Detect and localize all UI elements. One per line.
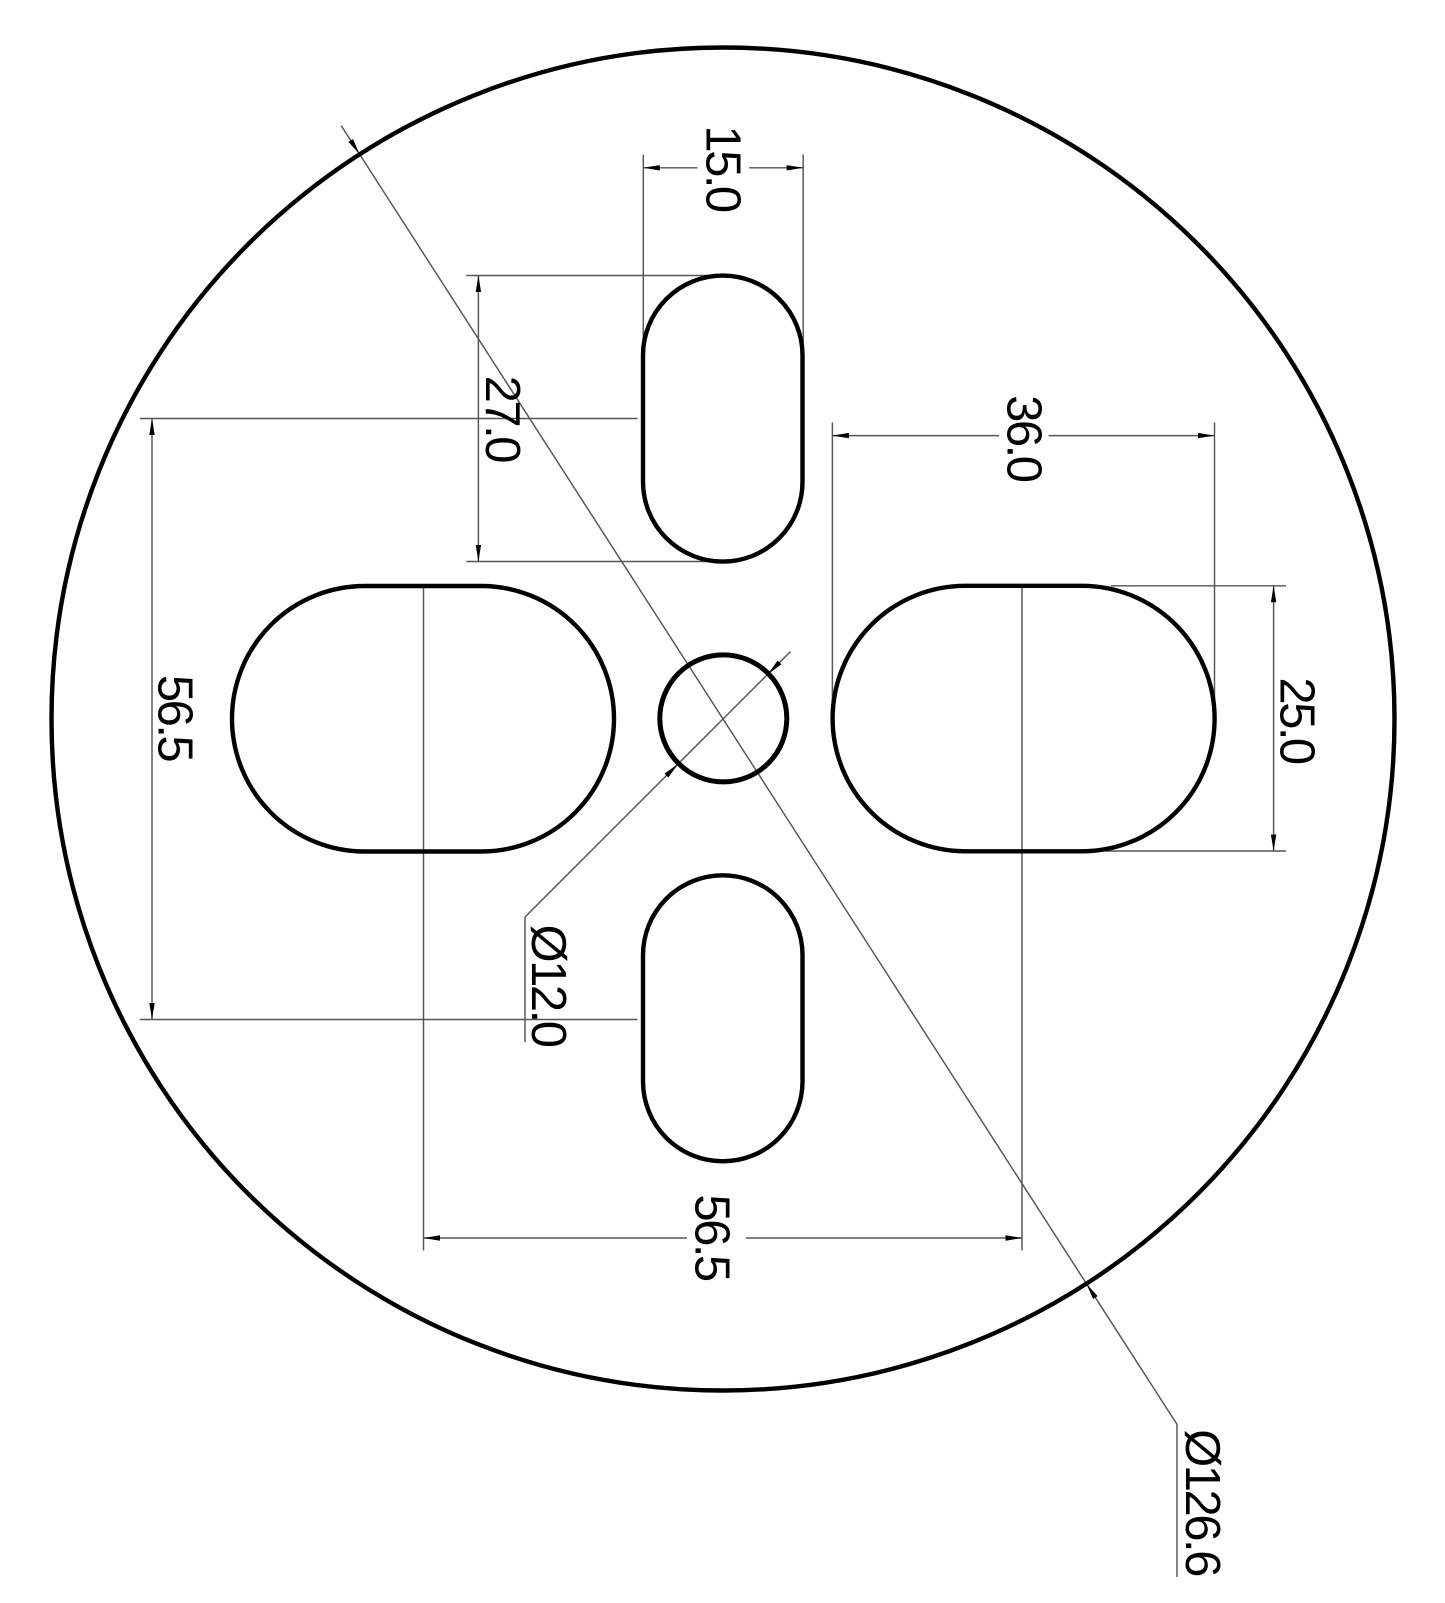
svg-text:15.0: 15.0 xyxy=(696,125,750,212)
svg-text:56.5: 56.5 xyxy=(685,1194,739,1281)
svg-text:Ø12.0: Ø12.0 xyxy=(521,925,575,1047)
svg-text:25.0: 25.0 xyxy=(1270,677,1324,764)
svg-text:36.0: 36.0 xyxy=(997,395,1051,482)
svg-text:56.5: 56.5 xyxy=(148,675,202,762)
svg-text:27.0: 27.0 xyxy=(475,376,529,463)
svg-text:Ø126.6: Ø126.6 xyxy=(1175,1429,1229,1576)
